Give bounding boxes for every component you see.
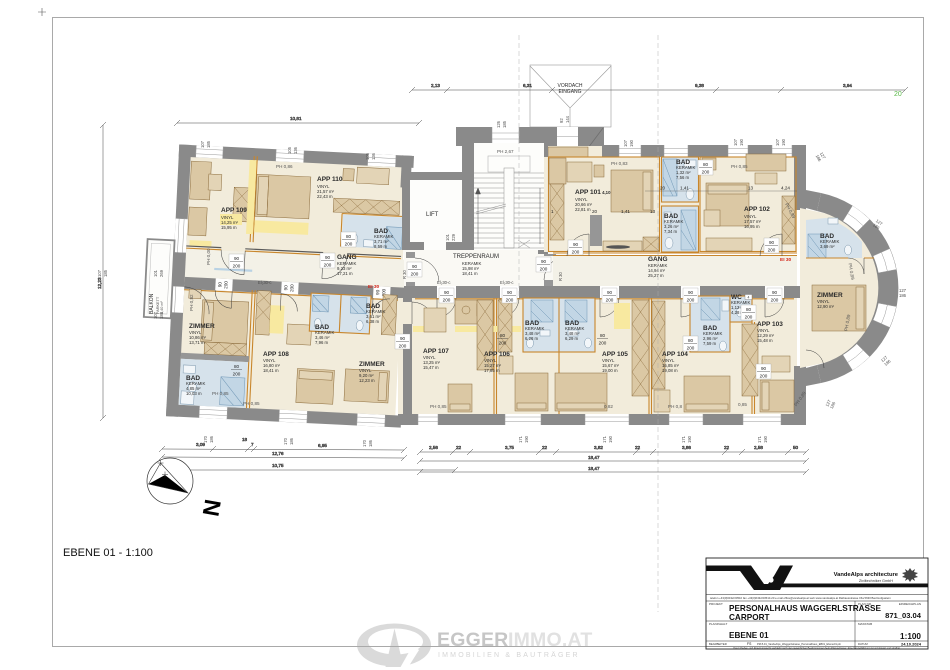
svg-text:PH 0,85: PH 0,85 bbox=[430, 404, 447, 409]
svg-text:12,23 m: 12,23 m bbox=[359, 378, 375, 383]
svg-text:1: 1 bbox=[551, 209, 554, 214]
svg-text:185: 185 bbox=[502, 120, 507, 128]
svg-text:LIFT: LIFT bbox=[426, 212, 439, 218]
svg-text:1,41: 1,41 bbox=[680, 186, 689, 191]
svg-text:185: 185 bbox=[206, 140, 211, 148]
svg-text:80: 80 bbox=[746, 307, 752, 312]
svg-text:200: 200 bbox=[687, 346, 695, 351]
svg-text:2,13: 2,13 bbox=[431, 83, 440, 88]
svg-text:FS: FS bbox=[747, 642, 752, 646]
svg-text:ZIMMER: ZIMMER bbox=[817, 292, 843, 299]
svg-text:80: 80 bbox=[234, 364, 240, 369]
svg-text:18,41 m: 18,41 m bbox=[263, 368, 279, 373]
svg-text:17,85 m: 17,85 m bbox=[484, 368, 500, 373]
svg-text:CARPORT: CARPORT bbox=[729, 613, 769, 622]
svg-text:ZIMMER: ZIMMER bbox=[189, 323, 215, 330]
svg-text:92: 92 bbox=[559, 118, 564, 123]
svg-text:10,81: 10,81 bbox=[290, 116, 302, 121]
svg-text:186: 186 bbox=[368, 439, 373, 447]
svg-text:1,41: 1,41 bbox=[621, 209, 630, 214]
svg-text:IMMO.AT: IMMO.AT bbox=[508, 629, 592, 651]
svg-text:15,47 m: 15,47 m bbox=[423, 365, 439, 370]
svg-text:105: 105 bbox=[365, 152, 370, 160]
svg-text:136: 136 bbox=[371, 152, 376, 160]
svg-text:4,40 m²: 4,40 m² bbox=[160, 300, 164, 314]
svg-text:200: 200 bbox=[606, 298, 614, 303]
svg-text:9,38: 9,38 bbox=[695, 83, 704, 88]
svg-text:101: 101 bbox=[153, 269, 158, 277]
svg-text:PH 0,85: PH 0,85 bbox=[243, 401, 260, 406]
svg-text:20: 20 bbox=[592, 209, 598, 214]
svg-text:107: 107 bbox=[97, 269, 102, 277]
svg-text:13,71 m: 13,71 m bbox=[189, 340, 205, 345]
svg-text:200: 200 bbox=[599, 341, 607, 346]
svg-text:PROJEKT: PROJEKT bbox=[709, 602, 723, 606]
svg-text:6,28 m: 6,28 m bbox=[525, 336, 539, 341]
svg-text:170: 170 bbox=[362, 439, 367, 447]
svg-text:186: 186 bbox=[289, 437, 294, 445]
svg-text:18,41 m: 18,41 m bbox=[462, 271, 478, 276]
svg-text:144: 144 bbox=[565, 115, 570, 123]
svg-text:90: 90 bbox=[375, 289, 380, 295]
svg-text:El₂30-c: El₂30-c bbox=[437, 280, 451, 285]
svg-text:90: 90 bbox=[541, 259, 547, 264]
svg-text:200: 200 bbox=[411, 272, 419, 277]
svg-text:PH 0,00: PH 0,00 bbox=[206, 248, 211, 265]
svg-text:871_03.04: 871_03.04 bbox=[885, 611, 922, 620]
svg-text:1:100: 1:100 bbox=[900, 632, 921, 641]
svg-text:12,76: 12,76 bbox=[272, 451, 284, 456]
svg-text:El₂30-c: El₂30-c bbox=[258, 280, 272, 285]
svg-text:PH 0,85: PH 0,85 bbox=[212, 391, 229, 396]
svg-text:4: 4 bbox=[748, 296, 750, 300]
svg-text:El₂30-c: El₂30-c bbox=[500, 280, 514, 285]
svg-text:3,94: 3,94 bbox=[843, 83, 852, 88]
svg-text:229: 229 bbox=[451, 233, 456, 241]
svg-text:22,81 m: 22,81 m bbox=[575, 207, 591, 212]
svg-text:200: 200 bbox=[540, 267, 548, 272]
svg-text:171: 171 bbox=[681, 435, 686, 443]
svg-text:APP 106: APP 106 bbox=[484, 351, 510, 358]
svg-text:200: 200 bbox=[572, 250, 580, 255]
svg-text:200: 200 bbox=[499, 341, 507, 346]
svg-text:15,95 m: 15,95 m bbox=[221, 225, 237, 230]
svg-text:APP 102: APP 102 bbox=[744, 206, 770, 213]
svg-text:2,58: 2,58 bbox=[754, 445, 763, 450]
svg-text:PLANINHALT: PLANINHALT bbox=[709, 622, 727, 626]
svg-text:22: 22 bbox=[456, 445, 462, 450]
svg-text:TREPPENRAUM: TREPPENRAUM bbox=[453, 254, 499, 260]
svg-text:90: 90 bbox=[400, 336, 406, 341]
svg-text:BEARBEITER: BEARBEITER bbox=[709, 642, 727, 646]
svg-text:190: 190 bbox=[629, 139, 634, 147]
svg-text:4,24: 4,24 bbox=[781, 186, 790, 191]
svg-text:200: 200 bbox=[289, 284, 294, 292]
svg-text:7,59 m: 7,59 m bbox=[703, 341, 717, 346]
svg-text:Ziviltechniker GmbH: Ziviltechniker GmbH bbox=[859, 579, 893, 583]
svg-text:17,21 m: 17,21 m bbox=[337, 271, 353, 276]
svg-text:90: 90 bbox=[761, 366, 767, 371]
svg-text:80: 80 bbox=[346, 234, 352, 239]
svg-text:18: 18 bbox=[242, 437, 248, 442]
svg-text:APP 110: APP 110 bbox=[317, 176, 343, 183]
svg-text:13: 13 bbox=[650, 209, 656, 214]
svg-text:3,75: 3,75 bbox=[505, 445, 514, 450]
svg-text:7,56 m: 7,56 m bbox=[676, 175, 690, 180]
svg-text:0,82: 0,82 bbox=[604, 404, 613, 409]
svg-text:R 30: R 30 bbox=[558, 271, 563, 281]
svg-text:107: 107 bbox=[775, 138, 780, 146]
svg-text:19,08 m: 19,08 m bbox=[662, 368, 678, 373]
svg-text:171: 171 bbox=[602, 435, 607, 443]
svg-text:90: 90 bbox=[217, 282, 222, 288]
svg-text:DATUM: DATUM bbox=[858, 642, 868, 646]
svg-text:126: 126 bbox=[496, 120, 501, 128]
svg-text:190: 190 bbox=[781, 138, 786, 146]
svg-text:6,31: 6,31 bbox=[523, 83, 532, 88]
svg-text:200: 200 bbox=[687, 298, 695, 303]
svg-text:10,75: 10,75 bbox=[272, 463, 284, 468]
svg-text:25,27 m: 25,27 m bbox=[648, 273, 664, 278]
svg-text:16,95 m: 16,95 m bbox=[744, 224, 760, 229]
svg-text:185: 185 bbox=[103, 269, 108, 277]
svg-text:PH 0,86: PH 0,86 bbox=[276, 164, 293, 169]
svg-text:90: 90 bbox=[325, 255, 331, 260]
svg-text:PM 8-01_VandeAlps_Waggerlstra: PM 8-01_VandeAlps_Waggerlstrasse_Persona… bbox=[757, 642, 842, 646]
svg-text:107: 107 bbox=[153, 311, 158, 319]
svg-text:PH 0,83: PH 0,83 bbox=[611, 161, 628, 166]
svg-text:90: 90 bbox=[607, 290, 613, 295]
svg-text:22: 22 bbox=[542, 445, 548, 450]
svg-text:APP 105: APP 105 bbox=[602, 351, 628, 358]
svg-text:171: 171 bbox=[757, 435, 762, 443]
svg-text:3,86: 3,86 bbox=[682, 445, 691, 450]
svg-text:0,85: 0,85 bbox=[738, 402, 747, 407]
svg-text:200: 200 bbox=[745, 315, 753, 320]
svg-text:7,34 m: 7,34 m bbox=[664, 229, 678, 234]
svg-text:10,03 m: 10,03 m bbox=[186, 391, 202, 396]
svg-text:APP 108: APP 108 bbox=[263, 351, 289, 358]
svg-text:200: 200 bbox=[702, 170, 710, 175]
svg-text:3,69 m²: 3,69 m² bbox=[820, 244, 835, 249]
svg-text:90: 90 bbox=[769, 240, 775, 245]
svg-text:185: 185 bbox=[159, 311, 164, 319]
svg-text:EGGER: EGGER bbox=[437, 629, 508, 651]
svg-text:7,96 m: 7,96 m bbox=[315, 340, 329, 345]
svg-text:GANG: GANG bbox=[648, 256, 668, 263]
svg-text:EI 30: EI 30 bbox=[368, 284, 380, 290]
svg-text:200: 200 bbox=[768, 248, 776, 253]
svg-text:107: 107 bbox=[623, 139, 628, 147]
svg-text:200: 200 bbox=[233, 264, 241, 269]
svg-text:186: 186 bbox=[209, 435, 214, 443]
svg-text:80: 80 bbox=[500, 333, 506, 338]
svg-text:15,48 m: 15,48 m bbox=[757, 338, 773, 343]
svg-text:PLAN NR.: PLAN NR. bbox=[858, 602, 872, 606]
svg-text:269: 269 bbox=[159, 269, 164, 277]
svg-text:8,59 m: 8,59 m bbox=[374, 244, 388, 249]
svg-text:200: 200 bbox=[506, 298, 514, 303]
svg-text:107: 107 bbox=[733, 138, 738, 146]
svg-text:R 30: R 30 bbox=[402, 269, 407, 279]
svg-text:BALKON: BALKON bbox=[149, 293, 155, 314]
svg-text:200: 200 bbox=[760, 374, 768, 379]
svg-text:APP 107: APP 107 bbox=[423, 348, 449, 355]
svg-text:190: 190 bbox=[608, 435, 613, 443]
svg-text:12,90 m²: 12,90 m² bbox=[817, 304, 835, 309]
svg-text:APP 109: APP 109 bbox=[221, 207, 247, 214]
svg-text:105: 105 bbox=[287, 146, 292, 154]
svg-text:90: 90 bbox=[283, 285, 288, 291]
svg-text:APP 101 4,10: APP 101 4,10 bbox=[575, 189, 611, 196]
svg-text:90: 90 bbox=[444, 290, 450, 295]
svg-text:22,43 m: 22,43 m bbox=[317, 194, 333, 199]
svg-text:50: 50 bbox=[793, 445, 799, 450]
svg-text:171: 171 bbox=[518, 435, 523, 443]
svg-text:80: 80 bbox=[688, 338, 694, 343]
svg-text:90: 90 bbox=[573, 242, 579, 247]
svg-text:136: 136 bbox=[293, 146, 298, 154]
svg-text:13: 13 bbox=[748, 186, 754, 191]
svg-text:190: 190 bbox=[763, 435, 768, 443]
svg-text:200: 200 bbox=[233, 372, 241, 377]
svg-text:200: 200 bbox=[324, 263, 332, 268]
svg-text:90: 90 bbox=[507, 290, 513, 295]
svg-text:IMMOBILIEN & BAUTRÄGER: IMMOBILIEN & BAUTRÄGER bbox=[438, 651, 580, 659]
svg-text:200: 200 bbox=[771, 298, 779, 303]
svg-text:PH 0,8: PH 0,8 bbox=[668, 404, 682, 409]
svg-text:22: 22 bbox=[724, 445, 730, 450]
svg-text:24.10.2024: 24.10.2024 bbox=[901, 642, 922, 647]
svg-text:Das Urheber- und Eigentumsrech: Das Urheber- und Eigentumsrecht verbleib… bbox=[733, 647, 901, 650]
svg-text:80: 80 bbox=[600, 333, 606, 338]
svg-text:20: 20 bbox=[660, 186, 666, 191]
svg-text:APP 103: APP 103 bbox=[757, 321, 783, 328]
svg-text:PH 0,82: PH 0,82 bbox=[189, 294, 194, 311]
svg-text:2,56: 2,56 bbox=[429, 445, 438, 450]
svg-text:200: 200 bbox=[443, 298, 451, 303]
svg-text:200: 200 bbox=[223, 281, 228, 289]
svg-text:EI 30: EI 30 bbox=[780, 257, 792, 263]
svg-text:22: 22 bbox=[635, 445, 641, 450]
svg-text:EINREICHPLAN: EINREICHPLAN bbox=[899, 602, 921, 606]
svg-text:90: 90 bbox=[234, 256, 240, 261]
svg-text:telefon +43(0)6432/20510 fa: telefon +43(0)6432/20510 fax +43(0)6432/… bbox=[710, 596, 891, 600]
svg-text:3,09: 3,09 bbox=[196, 442, 205, 447]
svg-text:18,47: 18,47 bbox=[588, 455, 600, 460]
svg-text:6,29 m: 6,29 m bbox=[565, 336, 579, 341]
svg-text:20: 20 bbox=[894, 91, 902, 98]
svg-text:200: 200 bbox=[345, 242, 353, 247]
svg-text:ZIMMER: ZIMMER bbox=[359, 361, 385, 368]
svg-text:7: 7 bbox=[251, 442, 254, 447]
svg-text:VandeAlps architecture: VandeAlps architecture bbox=[834, 572, 899, 578]
svg-text:80: 80 bbox=[703, 162, 709, 167]
svg-text:EBENE 01: EBENE 01 bbox=[729, 631, 769, 640]
svg-text:90: 90 bbox=[688, 290, 694, 295]
svg-text:101: 101 bbox=[445, 233, 450, 241]
svg-text:EBENE 01 - 1:100: EBENE 01 - 1:100 bbox=[63, 547, 153, 559]
svg-text:200: 200 bbox=[399, 344, 407, 349]
svg-text:190: 190 bbox=[687, 435, 692, 443]
svg-text:3,82: 3,82 bbox=[594, 445, 603, 450]
svg-text:12,23: 12,23 bbox=[97, 277, 102, 289]
svg-text:170: 170 bbox=[283, 437, 288, 445]
svg-text:18,47: 18,47 bbox=[588, 466, 600, 471]
svg-text:PH 0,85: PH 0,85 bbox=[731, 164, 748, 169]
svg-text:APP 104: APP 104 bbox=[662, 351, 688, 358]
svg-text:186: 186 bbox=[899, 293, 907, 298]
svg-text:107: 107 bbox=[200, 140, 205, 148]
svg-text:190: 190 bbox=[524, 435, 529, 443]
svg-text:MASSTAB: MASSTAB bbox=[858, 622, 872, 626]
svg-text:90: 90 bbox=[772, 290, 778, 295]
svg-text:GANG: GANG bbox=[337, 254, 357, 261]
svg-text:19,00 m: 19,00 m bbox=[602, 368, 618, 373]
svg-text:190: 190 bbox=[739, 138, 744, 146]
svg-text:6,38 m: 6,38 m bbox=[366, 319, 380, 324]
svg-text:PH 2,67: PH 2,67 bbox=[497, 149, 514, 154]
svg-text:90: 90 bbox=[412, 264, 418, 269]
svg-text:6,95: 6,95 bbox=[318, 443, 327, 448]
